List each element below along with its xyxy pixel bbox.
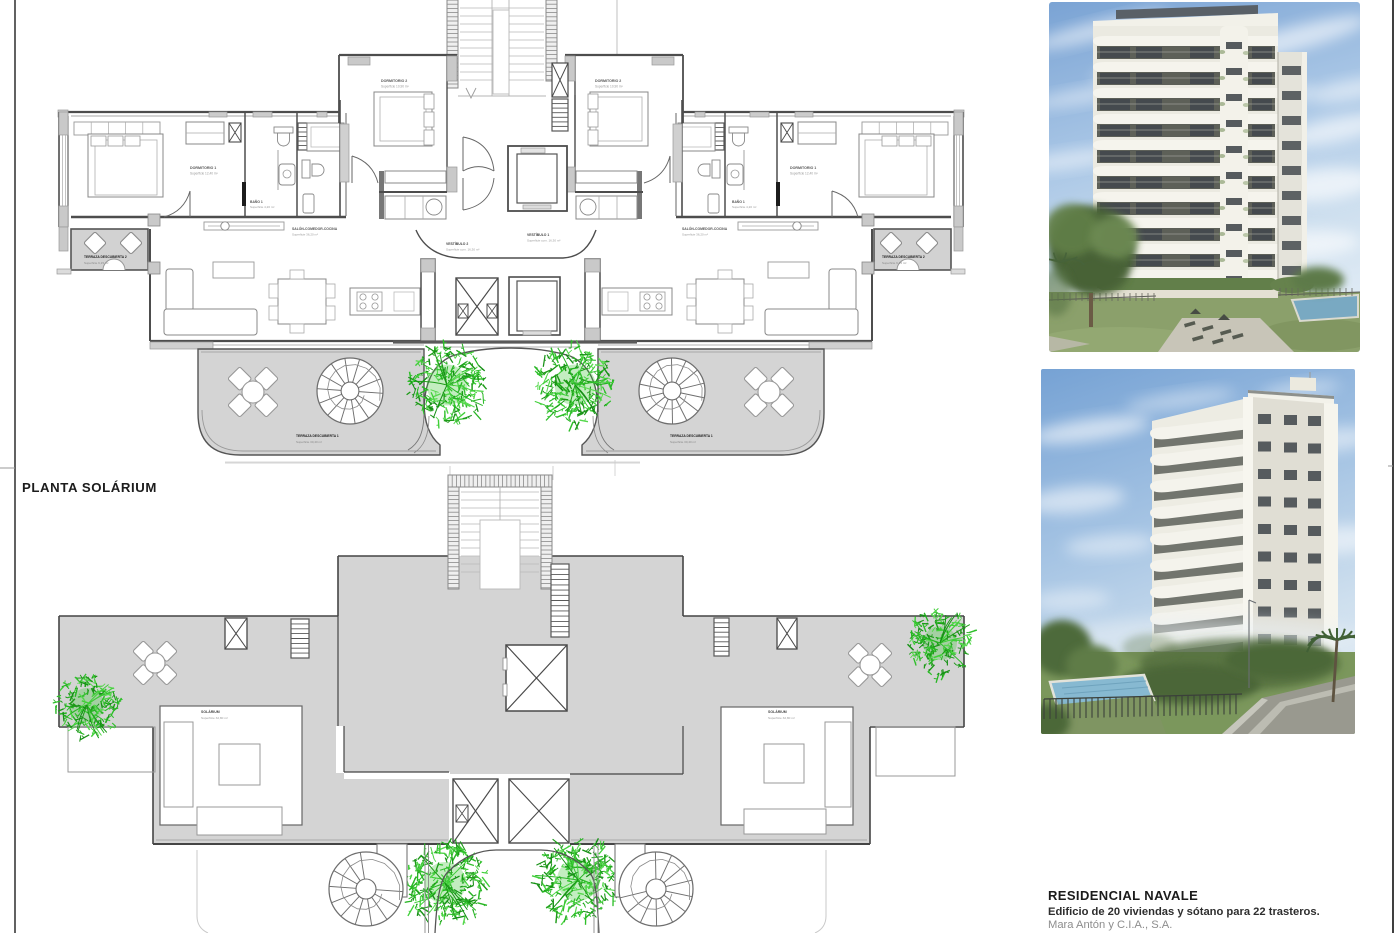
svg-text:Superficie 12,40 m²: Superficie 12,40 m² [790,172,818,176]
svg-text:BAÑO 1: BAÑO 1 [732,199,745,204]
svg-text:Superficie com. 16,30 m²: Superficie com. 16,30 m² [527,239,560,243]
svg-text:SOLÁRIUM: SOLÁRIUM [201,709,220,714]
svg-text:Mara Antón y C.I.A., S.A.: Mara Antón y C.I.A., S.A. [1048,919,1172,931]
svg-text:Superficie 10,90 m²: Superficie 10,90 m² [595,85,623,89]
svg-text:TERRAZA DESCUBIERTA 1: TERRAZA DESCUBIERTA 1 [296,434,339,438]
svg-text:Edificio de 20 viviendas y sót: Edificio de 20 viviendas y sótano para 2… [1048,906,1320,918]
svg-text:DORMITORIO 1: DORMITORIO 1 [190,166,216,170]
svg-text:BAÑO 1: BAÑO 1 [250,199,263,204]
svg-text:SALÓN-COMEDOR-COCINA: SALÓN-COMEDOR-COCINA [292,226,338,231]
svg-text:Superficie 9,15 m²: Superficie 9,15 m² [84,261,108,265]
svg-text:Superficie 4,20 m²: Superficie 4,20 m² [250,205,274,209]
svg-text:TERRAZA DESCUBIERTA 1: TERRAZA DESCUBIERTA 1 [670,434,713,438]
svg-text:Superficie 9,15 m²: Superficie 9,15 m² [882,261,906,265]
svg-text:Superficie 36,20 m²: Superficie 36,20 m² [682,233,708,237]
svg-text:DORMITORIO 2: DORMITORIO 2 [381,79,407,83]
svg-text:Superficie 10,90 m²: Superficie 10,90 m² [381,85,409,89]
svg-text:VESTÍBULO 2: VESTÍBULO 2 [446,241,468,246]
svg-text:PLANTA SOLÁRIUM: PLANTA SOLÁRIUM [22,480,157,495]
svg-text:Superficie com. 16,30 m²: Superficie com. 16,30 m² [446,248,479,252]
svg-text:Superficie 32,80 m²: Superficie 32,80 m² [201,716,228,720]
svg-text:DORMITORIO 2: DORMITORIO 2 [595,79,621,83]
svg-text:Superficie 36,20 m²: Superficie 36,20 m² [292,233,318,237]
svg-text:RESIDENCIAL NAVALE: RESIDENCIAL NAVALE [1048,888,1198,903]
svg-text:TERRAZA DESCUBIERTA 2: TERRAZA DESCUBIERTA 2 [84,255,127,259]
svg-text:SALÓN-COMEDOR-COCINA: SALÓN-COMEDOR-COCINA [682,226,728,231]
svg-text:Superficie 12,40 m²: Superficie 12,40 m² [190,172,218,176]
svg-text:Superficie 4,20 m²: Superficie 4,20 m² [732,205,756,209]
svg-text:Superficie 30,40 m²: Superficie 30,40 m² [670,440,696,444]
svg-text:DORMITORIO 1: DORMITORIO 1 [790,166,816,170]
svg-text:VESTÍBULO 1: VESTÍBULO 1 [527,232,549,237]
svg-text:TERRAZA DESCUBIERTA 2: TERRAZA DESCUBIERTA 2 [882,255,925,259]
svg-text:Superficie 30,40 m²: Superficie 30,40 m² [296,440,322,444]
svg-text:SOLÁRIUM: SOLÁRIUM [768,709,787,714]
svg-text:Superficie 32,80 m²: Superficie 32,80 m² [768,716,795,720]
